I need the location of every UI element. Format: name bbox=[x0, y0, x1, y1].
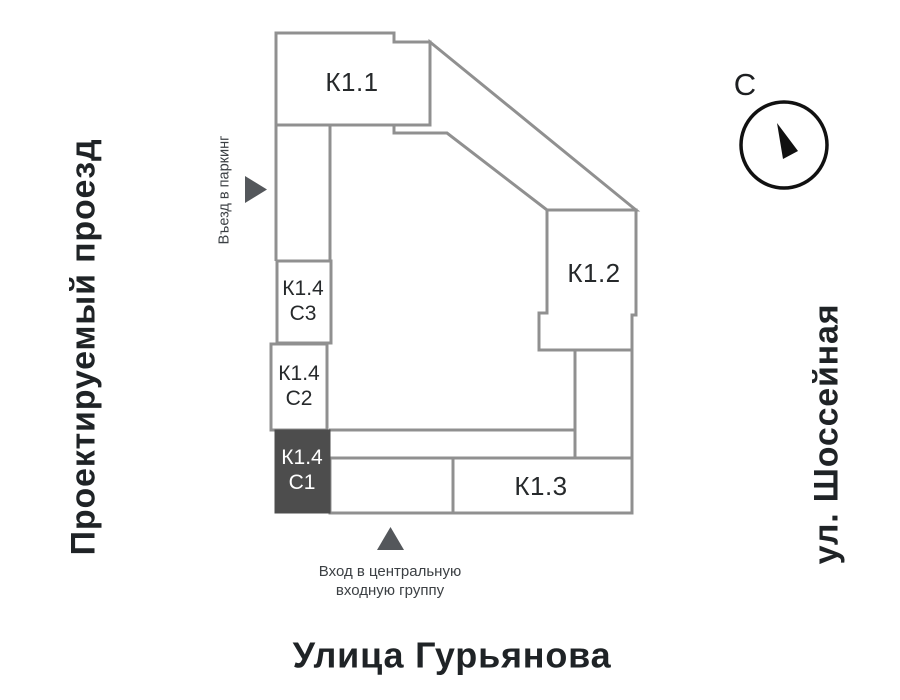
site-plan: К1.1 К1.2 К1.3 К1.4 С3 К1.4 С2 К1.4 С1 П… bbox=[0, 0, 900, 700]
building-k1-4-c1-label: К1.4 С1 bbox=[281, 445, 322, 495]
compass-north-label: С bbox=[734, 67, 756, 103]
street-label-bottom: Улица Гурьянова bbox=[293, 634, 612, 675]
building-k1-3-shape[interactable] bbox=[330, 458, 632, 513]
corridor-east-walls bbox=[575, 350, 632, 458]
building-k1-2-label: К1.2 bbox=[567, 259, 620, 289]
street-label-right: ул. Шоссейная bbox=[807, 304, 846, 565]
main-entrance-label: Вход в центральную входную группу bbox=[319, 562, 461, 600]
corridor-west-walls bbox=[276, 125, 330, 261]
parking-entrance-label: Въезд в паркинг bbox=[216, 136, 235, 245]
compass-needle-icon bbox=[777, 123, 798, 159]
building-k1-4-c3-label: К1.4 С3 bbox=[282, 276, 323, 326]
building-k1-1-label: К1.1 bbox=[325, 68, 378, 98]
gallery-diagonal-shape bbox=[394, 42, 636, 210]
street-label-left: Проектируемый проезд bbox=[64, 139, 103, 556]
building-k1-3-label: К1.3 bbox=[514, 472, 567, 502]
parking-entrance-arrow-icon bbox=[245, 176, 267, 203]
main-entrance-arrow-icon bbox=[377, 527, 404, 550]
building-k1-4-c2-label: К1.4 С2 bbox=[278, 361, 319, 411]
